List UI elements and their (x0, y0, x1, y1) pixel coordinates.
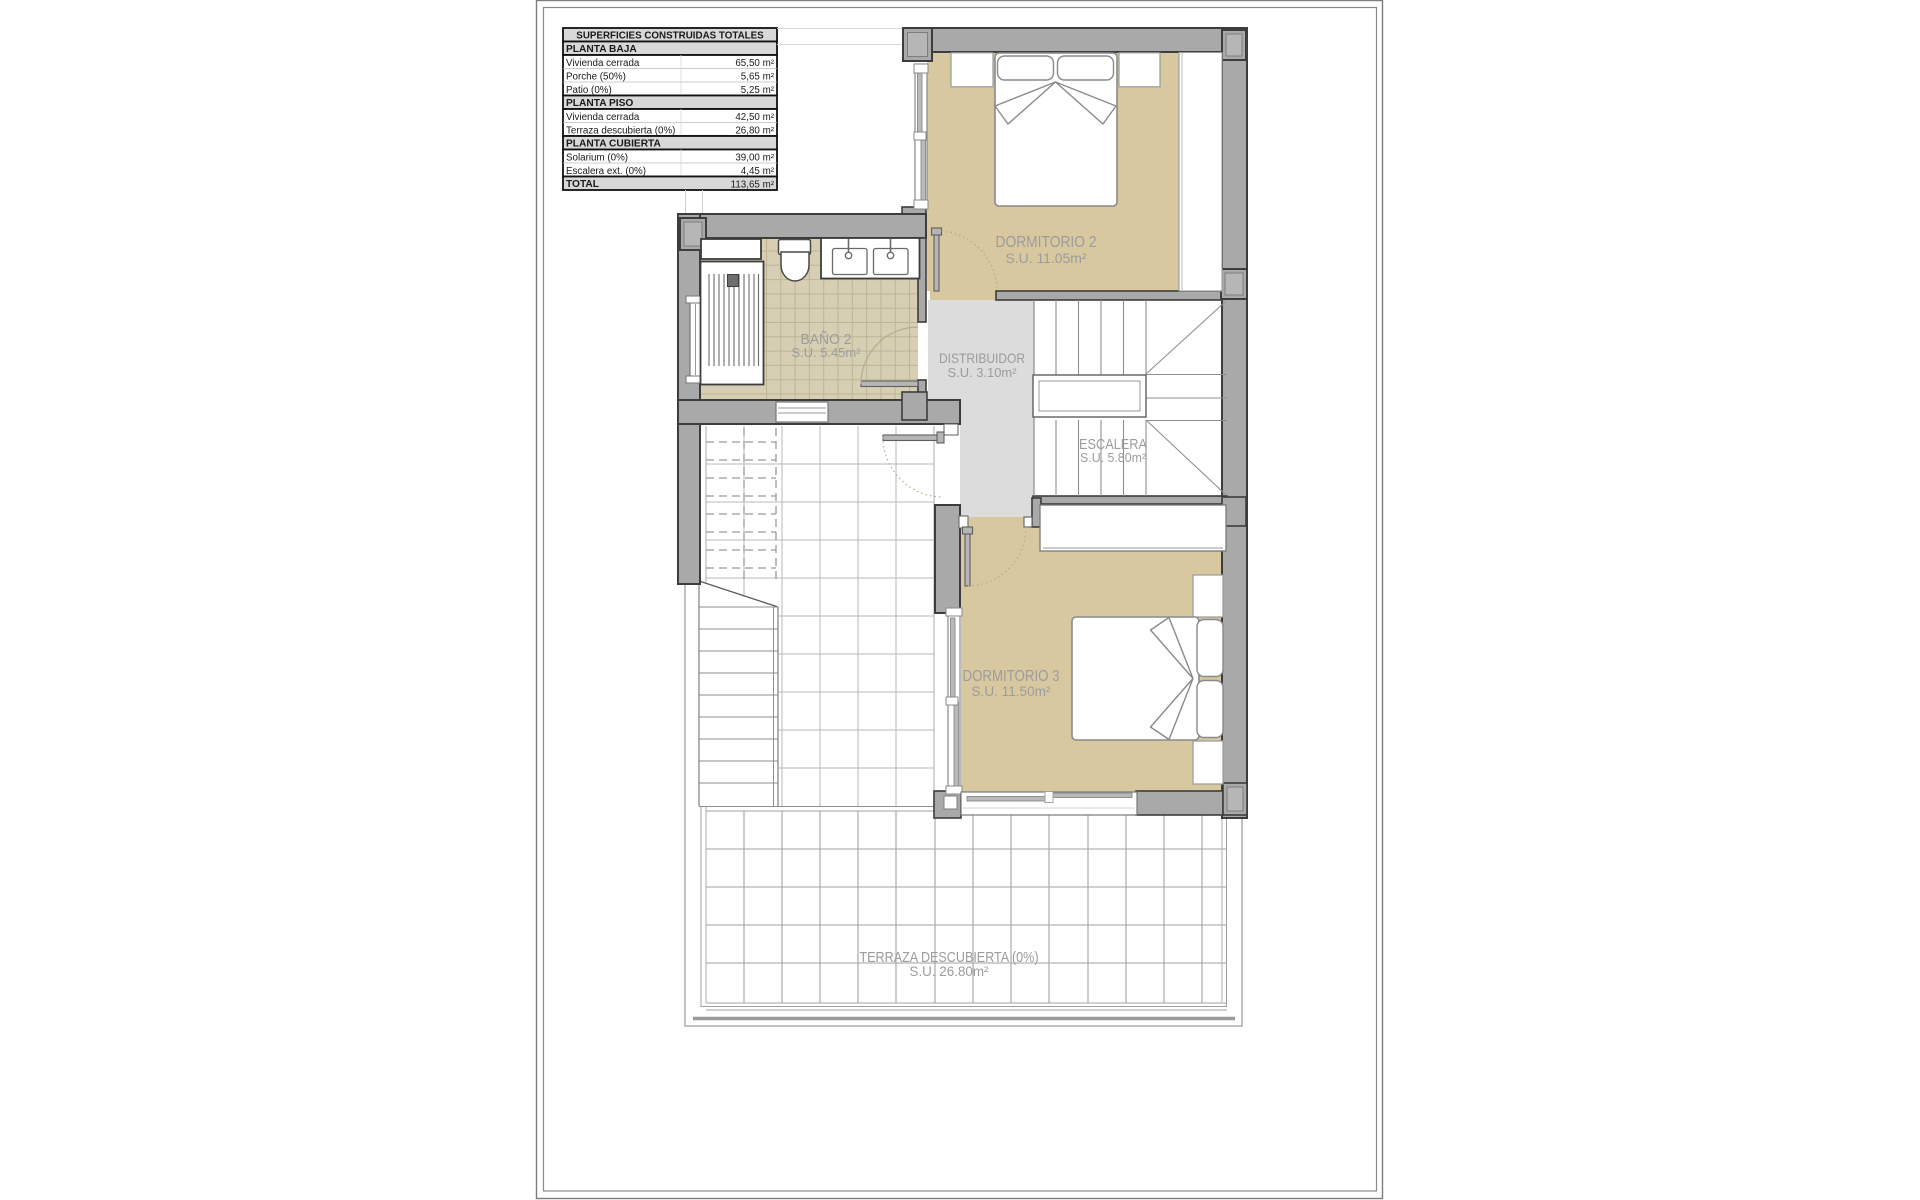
svg-text:Terraza descubierta (0%): Terraza descubierta (0%) (566, 125, 675, 136)
svg-text:Escalera ext. (0%): Escalera ext. (0%) (566, 166, 646, 177)
svg-text:S.U. 3.10m²: S.U. 3.10m² (948, 365, 1018, 380)
svg-text:26,80 m²: 26,80 m² (735, 125, 774, 136)
svg-text:113,65 m²: 113,65 m² (731, 179, 775, 190)
svg-text:S.U. 11.50m²: S.U. 11.50m² (972, 684, 1052, 699)
svg-text:S.U. 5.45m²: S.U. 5.45m² (792, 345, 862, 360)
svg-text:DISTRIBUIDOR: DISTRIBUIDOR (939, 350, 1025, 366)
svg-text:DORMITORIO 3: DORMITORIO 3 (963, 668, 1060, 685)
svg-text:4,45 m²: 4,45 m² (741, 166, 775, 177)
svg-text:5,65 m²: 5,65 m² (741, 71, 775, 82)
svg-text:65,50 m²: 65,50 m² (735, 58, 774, 69)
svg-text:39,00 m²: 39,00 m² (735, 152, 774, 163)
svg-text:TOTAL: TOTAL (566, 179, 599, 190)
svg-text:SUPERFICIES CONSTRUIDAS TOTALE: SUPERFICIES CONSTRUIDAS TOTALES (576, 30, 764, 41)
svg-text:PLANTA BAJA: PLANTA BAJA (566, 44, 637, 55)
svg-text:Patio (0%): Patio (0%) (566, 85, 612, 96)
svg-text:Porche (50%): Porche (50%) (566, 71, 626, 82)
svg-text:5,25 m²: 5,25 m² (741, 85, 775, 96)
svg-text:PLANTA PISO: PLANTA PISO (566, 98, 633, 109)
svg-text:Vivienda cerrada: Vivienda cerrada (566, 112, 640, 123)
svg-text:S.U. 5.80m²: S.U. 5.80m² (1080, 450, 1147, 465)
svg-text:PLANTA CUBIERTA: PLANTA CUBIERTA (566, 139, 662, 150)
svg-text:S.U. 11.05m²: S.U. 11.05m² (1006, 251, 1088, 266)
svg-text:42,50 m²: 42,50 m² (735, 112, 774, 123)
svg-text:DORMITORIO 2: DORMITORIO 2 (996, 234, 1097, 251)
svg-text:S.U. 26.80m²: S.U. 26.80m² (910, 964, 989, 979)
svg-text:Vivienda cerrada: Vivienda cerrada (566, 58, 640, 69)
svg-text:Solarium (0%): Solarium (0%) (566, 152, 628, 163)
